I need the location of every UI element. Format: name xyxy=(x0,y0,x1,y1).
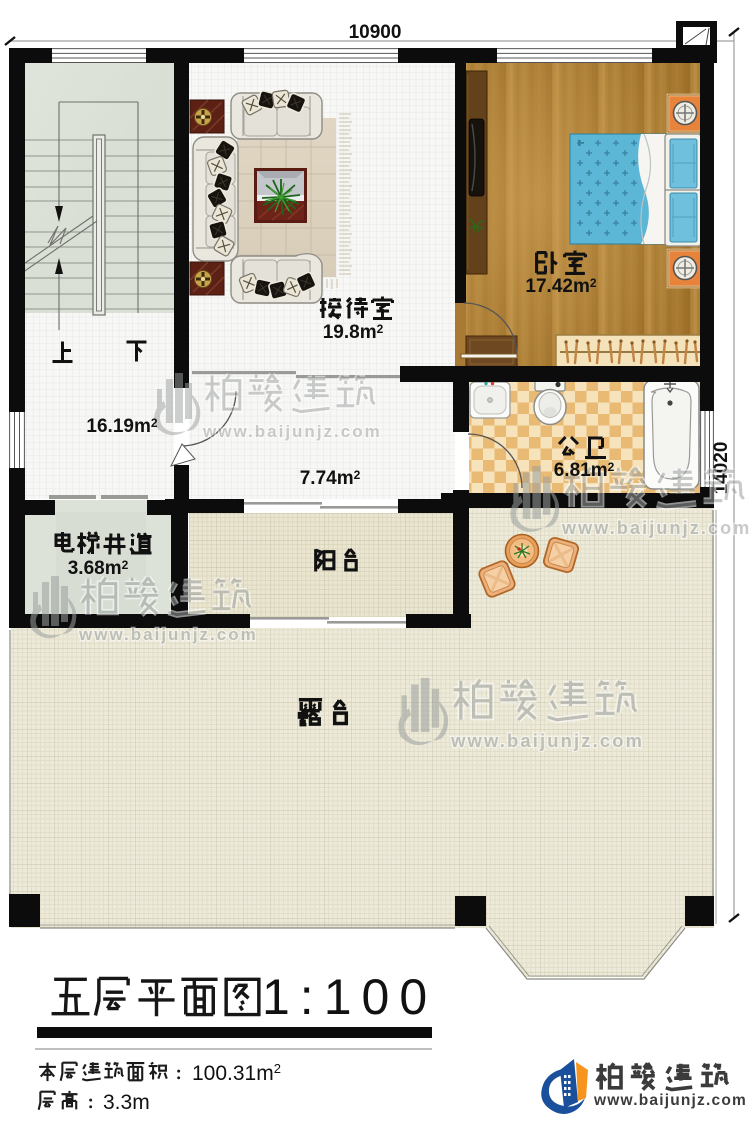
svg-text:3.68m2: 3.68m2 xyxy=(68,558,129,579)
svg-text:17.42m2: 17.42m2 xyxy=(525,276,596,297)
svg-text:7.74m2: 7.74m2 xyxy=(300,468,361,489)
svg-text:www.baijunjz.com: www.baijunjz.com xyxy=(593,1092,747,1109)
svg-text:6.81m2: 6.81m2 xyxy=(554,460,615,481)
svg-text:3.3m: 3.3m xyxy=(103,1091,150,1114)
svg-text:1:100: 1:100 xyxy=(262,969,437,1025)
svg-text:16.19m2: 16.19m2 xyxy=(86,416,157,437)
svg-text:10900: 10900 xyxy=(349,22,402,43)
svg-text:100.31m2: 100.31m2 xyxy=(192,1061,281,1085)
svg-text:19.8m2: 19.8m2 xyxy=(323,322,384,343)
